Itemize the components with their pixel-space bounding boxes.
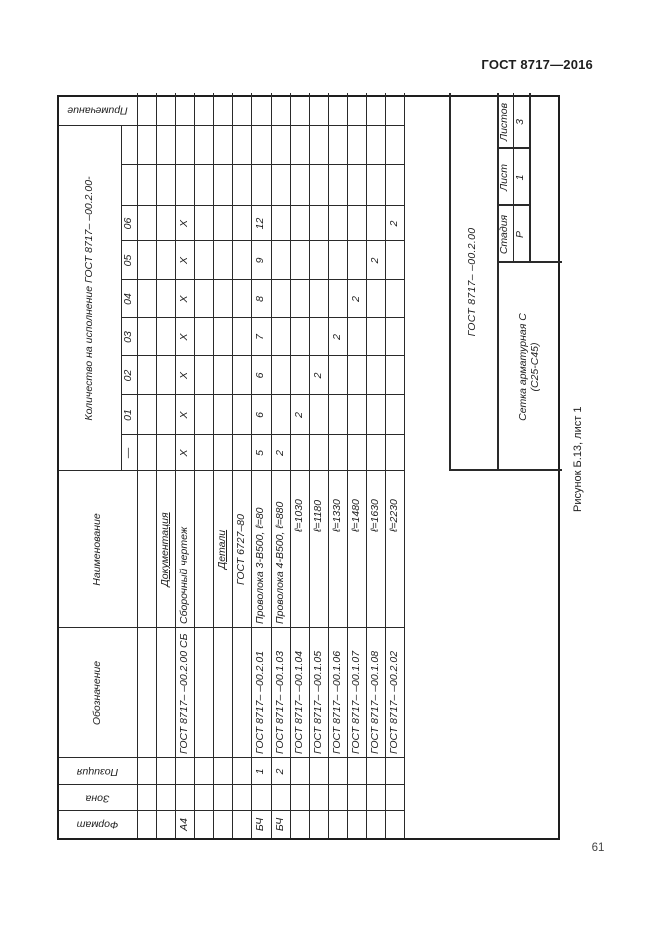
grid-line-h <box>290 93 291 838</box>
cell-name: ℓ=1330 <box>328 471 347 628</box>
titleblock-product-name: Сетка арматурная С (С25-С45) <box>497 263 562 471</box>
cell-name: ℓ=2230 <box>385 471 404 628</box>
cell-name: Документация <box>156 471 175 628</box>
cell-position: 1 <box>251 758 270 785</box>
exec-col-label: — <box>121 435 137 471</box>
cell-position: 2 <box>271 758 290 785</box>
figure-caption: Рисунок Б.13, лист 1 <box>572 392 584 512</box>
grid-line-h <box>404 93 405 838</box>
cell-qty: Х <box>175 318 194 356</box>
cell-qty: 2 <box>366 241 385 280</box>
titleblock-stage-label: Стадия <box>497 206 513 263</box>
cell-name: Сборочный чертеж <box>175 471 194 628</box>
cell-qty: 6 <box>251 356 270 395</box>
grid-line-h <box>194 93 195 838</box>
grid-line-h <box>366 93 367 838</box>
cell-designation: ГОСТ 8717– –00.2.01 <box>251 628 270 758</box>
cell-name: ℓ=1480 <box>347 471 366 628</box>
grid-line-h <box>271 93 272 838</box>
cell-format: БЧ <box>251 811 270 838</box>
col-header-note: Примечание <box>59 93 137 126</box>
col-header-note-label: Примечание <box>68 104 128 115</box>
grid-line-v <box>121 240 404 241</box>
cell-name: Проволока 3-В500, ℓ=80 <box>251 471 270 628</box>
col-header-format-label: Формат <box>77 819 119 830</box>
cell-designation: ГОСТ 8717– –00.1.04 <box>290 628 309 758</box>
col-header-name: Наименование <box>59 471 137 628</box>
grid-line-h <box>175 93 176 838</box>
cell-designation: ГОСТ 8717– –00.2.02 <box>385 628 404 758</box>
cell-qty: Х <box>175 241 194 280</box>
cell-name: Детали <box>213 471 232 628</box>
grid-line-v <box>121 317 404 318</box>
cell-qty: Х <box>175 435 194 471</box>
exec-col-label: 02 <box>121 356 137 395</box>
grid-line-h <box>213 93 214 838</box>
titleblock-sheets-label: Листов <box>497 95 513 149</box>
cell-qty: 12 <box>251 206 270 241</box>
grid-line-v <box>121 394 404 395</box>
grid-line-h <box>328 93 329 838</box>
col-header-position: Позиция <box>59 758 137 785</box>
cell-format: А4 <box>175 811 194 838</box>
cell-qty: Х <box>175 356 194 395</box>
grid-line-h <box>309 93 310 838</box>
exec-col-label: 05 <box>121 241 137 280</box>
col-header-designation: Обозначение <box>59 628 137 758</box>
cell-qty: 6 <box>251 395 270 435</box>
titleblock-sheets-value: 3 <box>513 95 529 149</box>
grid-line-h <box>156 93 157 838</box>
cell-qty: 8 <box>251 280 270 318</box>
col-header-zone-label: Зона <box>86 792 110 803</box>
cell-designation: ГОСТ 8717– –00.1.05 <box>309 628 328 758</box>
grid-line-h <box>251 93 252 838</box>
cell-qty: 2 <box>347 280 366 318</box>
col-header-position-label: Позиция <box>77 766 119 777</box>
exec-col-label: 06 <box>121 206 137 241</box>
cell-qty: 2 <box>271 435 290 471</box>
cell-qty: 2 <box>328 318 347 356</box>
exec-col-label <box>121 165 137 206</box>
cell-name: ГОСТ 6727–80 <box>232 471 251 628</box>
titleblock-product-name-lines: Сетка арматурная С (С25-С45) <box>518 313 540 421</box>
cell-qty: 9 <box>251 241 270 280</box>
grid-line-v <box>121 355 404 356</box>
cell-name: ℓ=1030 <box>290 471 309 628</box>
cell-designation: ГОСТ 8717– –00.2.00 СБ <box>175 628 194 758</box>
exec-col-label: 04 <box>121 280 137 318</box>
titleblock-line <box>529 93 531 263</box>
cell-name: ℓ=1180 <box>309 471 328 628</box>
cell-name: ℓ=1630 <box>366 471 385 628</box>
titleblock-stage-value: Р <box>513 206 529 263</box>
titleblock-sheet-value: 1 <box>513 149 529 206</box>
cell-qty: Х <box>175 280 194 318</box>
col-header-format: Формат <box>59 811 137 838</box>
exec-col-label <box>121 126 137 165</box>
cell-designation: ГОСТ 8717– –00.1.06 <box>328 628 347 758</box>
cell-format: БЧ <box>271 811 290 838</box>
col-header-quantity-group: Количество на исполнение ГОСТ 8717– –00.… <box>59 126 121 471</box>
col-header-zone: Зона <box>59 785 137 811</box>
scanned-standard-page: { "page": { "standard_ref": "ГОСТ 8717—2… <box>0 0 661 935</box>
cell-qty: Х <box>175 206 194 241</box>
grid-line-h <box>121 126 122 471</box>
titleblock-designation: ГОСТ 8717– –00.2.00 <box>449 93 497 471</box>
cell-designation: ГОСТ 8717– –00.1.08 <box>366 628 385 758</box>
cell-designation: ГОСТ 8717– –00.1.03 <box>271 628 290 758</box>
cell-qty: 2 <box>290 395 309 435</box>
grid-line-v <box>121 434 404 435</box>
grid-line-h <box>385 93 386 838</box>
cell-qty: 2 <box>309 356 328 395</box>
page-number: 61 <box>583 842 613 854</box>
cell-designation: ГОСТ 8717– –00.1.07 <box>347 628 366 758</box>
titleblock-sheet-label: Лист <box>497 149 513 206</box>
exec-col-label: 03 <box>121 318 137 356</box>
grid-line-v <box>121 164 404 165</box>
specification-sheet: Формат Зона Позиция Обозначение Наименов… <box>57 95 560 840</box>
grid-line-h <box>232 93 233 838</box>
cell-qty: Х <box>175 395 194 435</box>
standard-reference: ГОСТ 8717—2016 <box>433 57 593 72</box>
grid-line-v <box>121 279 404 280</box>
grid-line-h <box>347 93 348 838</box>
product-name-line2: (С25-С45) <box>529 343 541 392</box>
grid-line-v <box>121 205 404 206</box>
grid-line-h <box>137 93 138 838</box>
cell-qty: 5 <box>251 435 270 471</box>
exec-col-label: 01 <box>121 395 137 435</box>
cell-qty: 2 <box>385 206 404 241</box>
cell-name: Проволока 4-В500, ℓ=880 <box>271 471 290 628</box>
cell-qty: 7 <box>251 318 270 356</box>
